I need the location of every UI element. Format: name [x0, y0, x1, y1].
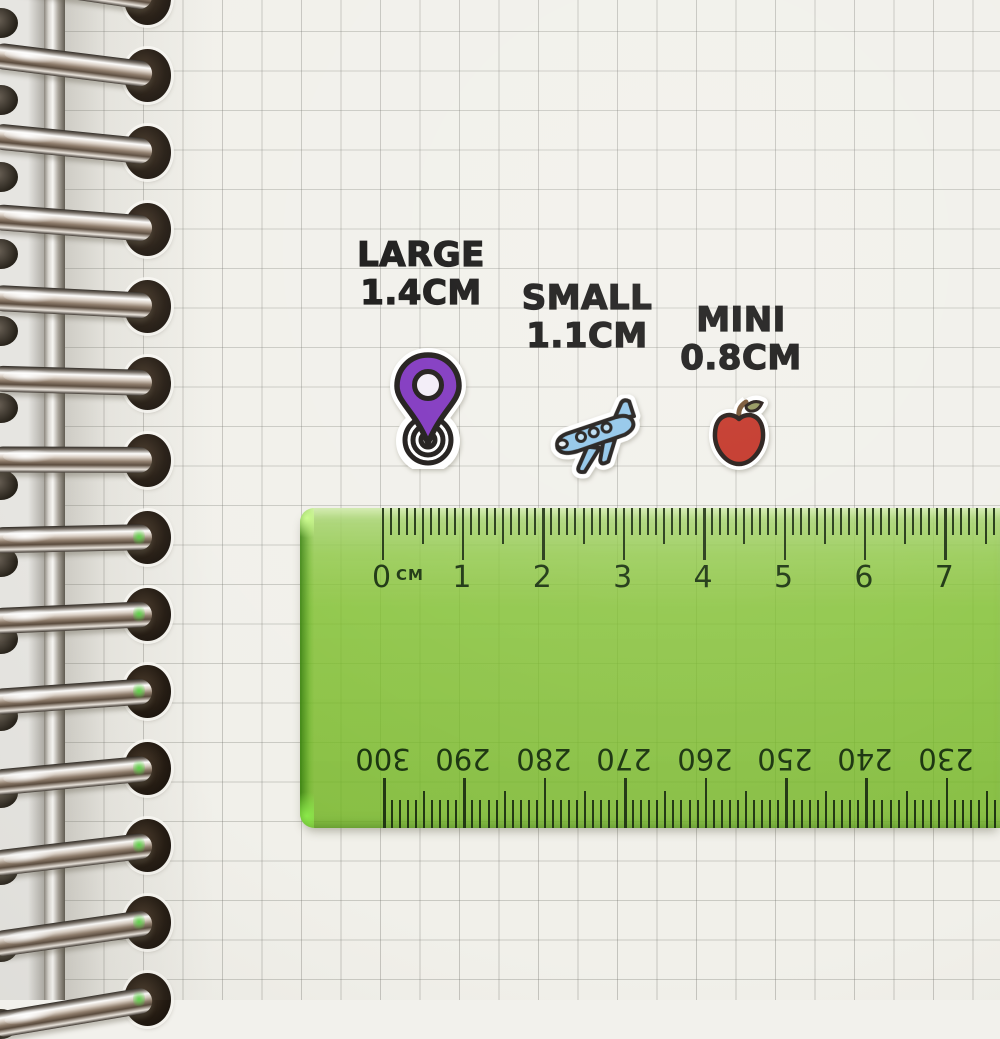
ruler-tick-bottom — [536, 800, 538, 828]
ruler-tick-bottom — [616, 800, 618, 828]
ruler-tick-top — [880, 508, 882, 535]
ruler-tick-bottom — [873, 800, 875, 828]
ruler-tick-top — [591, 508, 593, 535]
ruler-tick-bottom — [938, 800, 940, 828]
binder-ring — [0, 446, 152, 473]
ruler-tick-bottom — [415, 800, 417, 828]
label-large-title: LARGE — [357, 236, 485, 274]
ruler-tick-top — [719, 508, 721, 535]
ruler-tick-top — [647, 508, 649, 535]
ruler-tick-bottom — [785, 778, 788, 828]
ruler-tick-bottom — [504, 791, 506, 828]
ruler-tick-top — [743, 508, 745, 544]
ruler-tick-top — [494, 508, 496, 535]
ruler-unit-label: CM — [396, 566, 424, 584]
binder-ring — [0, 366, 152, 396]
ruler-tick-top — [615, 508, 617, 535]
ruler-tick-bottom — [906, 791, 908, 828]
ruler-tick-top — [639, 508, 641, 535]
ruler-tick-bottom — [809, 800, 811, 828]
ruler-bottom-number: 280 — [516, 742, 571, 776]
ruler-tick-bottom — [914, 800, 916, 828]
ruler-tick-bottom — [488, 800, 490, 828]
location-pin-sticker — [381, 345, 475, 469]
ruler-tick-bottom — [584, 791, 586, 828]
ruler-tick-top — [446, 508, 448, 535]
ruler-tick-bottom — [922, 800, 924, 828]
ruler-tick-top — [800, 508, 802, 535]
ruler-tick-bottom — [761, 800, 763, 828]
ruler-tick-top — [856, 508, 858, 535]
ruler-tick-bottom — [777, 800, 779, 828]
ruler-tick-top — [438, 508, 440, 535]
ruler-tick-bottom — [439, 800, 441, 828]
ruler-tick-bottom — [713, 800, 715, 828]
notebook-photo: LARGE 1.4CM SMALL 1.1CM MINI 0.8CM — [0, 0, 1000, 1000]
ruler-tick-bottom — [520, 800, 522, 828]
ruler-tick-top — [904, 508, 906, 544]
ruler-tick-top — [896, 508, 898, 535]
ruler-tick-bottom — [970, 800, 972, 828]
ruler-tick-bottom — [528, 800, 530, 828]
ruler-tick-bottom — [496, 800, 498, 828]
ruler-tick-bottom — [954, 800, 956, 828]
airplane-nose — [557, 440, 567, 449]
ruler-tick-top — [775, 508, 777, 535]
ruler-tick-bottom — [994, 800, 996, 828]
ruler-tick-top — [872, 508, 874, 535]
ring-green-reflection — [133, 989, 145, 1009]
ruler-tick-bottom — [544, 778, 547, 828]
binder-ring — [0, 524, 152, 553]
ruler-tick-bottom — [697, 800, 699, 828]
ruler-tick-bottom — [512, 800, 514, 828]
ruler-tick-bottom — [479, 800, 481, 828]
ruler-tick-bottom — [841, 800, 843, 828]
map-pin-hole — [415, 372, 442, 399]
ruler-top-number: 1 — [452, 560, 471, 595]
ruler-tick-top — [382, 508, 385, 560]
ruler-tick-top — [936, 508, 938, 535]
ruler-tick-top — [566, 508, 568, 535]
ruler-tick-top — [623, 508, 626, 560]
ruler-top-number: 0 — [372, 560, 391, 595]
ruler-tick-top — [808, 508, 810, 535]
ruler-tick-bottom — [705, 778, 708, 828]
ruler-tick-top — [414, 508, 416, 535]
ruler-tick-top — [985, 508, 987, 544]
ruler-tick-bottom — [833, 800, 835, 828]
ruler-tick-bottom — [383, 778, 386, 828]
apple-sticker — [705, 395, 773, 473]
ruler-tick-top — [679, 508, 681, 535]
ring-green-reflection — [133, 758, 145, 778]
ruler-tick-bottom — [592, 800, 594, 828]
ruler-bottom-number: 300 — [355, 742, 410, 776]
ruler-tick-top — [599, 508, 601, 535]
ruler-tick-bottom — [656, 800, 658, 828]
ruler-tick-top — [583, 508, 585, 544]
ruler-tick-bottom — [865, 778, 868, 828]
label-small-title: SMALL — [522, 279, 652, 317]
ruler-tick-bottom — [568, 800, 570, 828]
ruler-tick-top — [912, 508, 914, 535]
ring-green-reflection — [133, 912, 145, 932]
ring-green-reflection — [133, 835, 145, 855]
ruler-tick-bottom — [962, 800, 964, 828]
ruler-tick-top — [558, 508, 560, 535]
ruler-tick-top — [534, 508, 536, 535]
ruler-bottom-number: 270 — [597, 742, 652, 776]
ruler-top-number: 3 — [613, 560, 632, 595]
ruler-tick-bottom — [447, 800, 449, 828]
ruler-tick-top — [687, 508, 689, 535]
ruler-tick-top — [711, 508, 713, 535]
label-mini: MINI 0.8CM — [680, 301, 802, 377]
ruler-tick-top — [832, 508, 834, 535]
ruler-tick-bottom — [423, 791, 425, 828]
ruler-tick-top — [751, 508, 753, 535]
ruler-tick-top — [398, 508, 400, 535]
ruler-tick-top — [792, 508, 794, 535]
ruler-tick-bottom — [664, 791, 666, 828]
ruler-tick-bottom — [560, 800, 562, 828]
ruler-tick-top — [631, 508, 633, 535]
ruler-tick-top — [864, 508, 867, 560]
ruler-tick-top — [406, 508, 408, 535]
airplane-sticker — [543, 393, 655, 481]
ruler-tick-top — [695, 508, 697, 535]
ruler-tick-bottom — [455, 800, 457, 828]
ruler-tick-bottom — [801, 800, 803, 828]
ruler-tick-top — [607, 508, 609, 535]
ruler-tick-bottom — [471, 800, 473, 828]
ruler-tick-top — [655, 508, 657, 535]
ruler-tick-top — [574, 508, 576, 535]
ruler-tick-top — [759, 508, 761, 535]
ruler-tick-top — [960, 508, 962, 535]
ruler-bottom-number: 290 — [436, 742, 491, 776]
ruler-top-number: 5 — [774, 560, 793, 595]
ruler-tick-bottom — [552, 800, 554, 828]
ruler-tick-top — [816, 508, 818, 535]
ruler-tick-bottom — [721, 800, 723, 828]
ruler-tick-bottom — [608, 800, 610, 828]
ruler-tick-top — [478, 508, 480, 535]
ruler-tick-top — [784, 508, 787, 560]
ruler-bottom-number: 260 — [677, 742, 732, 776]
ruler-tick-top — [840, 508, 842, 535]
ruler-tick-bottom — [576, 800, 578, 828]
ruler-tick-top — [542, 508, 545, 560]
ruler-tick-top — [952, 508, 954, 535]
ruler-tick-top — [550, 508, 552, 535]
ruler-tick-bottom — [769, 800, 771, 828]
ruler-tick-top — [727, 508, 729, 535]
ruler-tick-bottom — [745, 791, 747, 828]
ruler-tick-bottom — [753, 800, 755, 828]
ruler-tick-bottom — [825, 791, 827, 828]
ruler-tick-bottom — [946, 778, 949, 828]
ruler-left-edge — [300, 508, 314, 828]
ruler-tick-bottom — [680, 800, 682, 828]
ruler-tick-bottom — [817, 800, 819, 828]
ruler-tick-bottom — [431, 800, 433, 828]
ruler-tick-top — [510, 508, 512, 535]
ruler-tick-bottom — [600, 800, 602, 828]
ruler-tick-top — [888, 508, 890, 535]
label-mini-size: 0.8CM — [680, 339, 802, 377]
ruler-tick-bottom — [729, 800, 731, 828]
ruler-top-number: 7 — [935, 560, 954, 595]
ruler: 01234567300290280270260250240230 CM — [300, 508, 1000, 828]
ruler-top-number: 6 — [854, 560, 873, 595]
ruler-tick-top — [486, 508, 488, 535]
ruler-tick-top — [671, 508, 673, 535]
ring-green-reflection — [133, 681, 145, 701]
label-mini-title: MINI — [680, 301, 802, 339]
ruler-tick-bottom — [407, 800, 409, 828]
ruler-tick-top — [944, 508, 947, 560]
ruler-tick-top — [430, 508, 432, 535]
ruler-tick-bottom — [881, 800, 883, 828]
ruler-tick-top — [976, 508, 978, 535]
ruler-tick-top — [390, 508, 392, 535]
ruler-tick-bottom — [849, 800, 851, 828]
apple-icon — [715, 415, 763, 464]
ruler-tick-top — [920, 508, 922, 535]
ruler-tick-bottom — [672, 800, 674, 828]
ruler-bottom-number: 240 — [838, 742, 893, 776]
ring-green-reflection — [133, 604, 145, 624]
ruler-tick-top — [993, 508, 995, 535]
ruler-tick-top — [703, 508, 706, 560]
ruler-tick-top — [422, 508, 424, 544]
ruler-tick-bottom — [793, 800, 795, 828]
ruler-tick-top — [462, 508, 465, 560]
ruler-bottom-number: 230 — [918, 742, 973, 776]
ruler-tick-bottom — [463, 778, 466, 828]
ruler-tick-top — [502, 508, 504, 544]
ruler-tick-bottom — [689, 800, 691, 828]
ruler-tick-bottom — [857, 800, 859, 828]
ruler-top-number: 4 — [694, 560, 713, 595]
ruler-tick-bottom — [624, 778, 627, 828]
ruler-top-number: 2 — [533, 560, 552, 595]
ruler-tick-top — [663, 508, 665, 544]
ruler-tick-top — [470, 508, 472, 535]
ruler-tick-bottom — [648, 800, 650, 828]
ruler-tick-top — [968, 508, 970, 535]
ruler-tick-top — [848, 508, 850, 535]
ruler-tick-bottom — [399, 800, 401, 828]
ruler-tick-top — [454, 508, 456, 535]
ruler-tick-top — [526, 508, 528, 535]
ruler-tick-bottom — [930, 800, 932, 828]
ruler-bottom-number: 250 — [757, 742, 812, 776]
ruler-tick-bottom — [632, 800, 634, 828]
label-small-size: 1.1CM — [522, 317, 652, 355]
ring-green-reflection — [133, 527, 145, 547]
label-large: LARGE 1.4CM — [357, 236, 485, 312]
ruler-tick-top — [767, 508, 769, 535]
ruler-tick-top — [928, 508, 930, 535]
ruler-tick-bottom — [986, 791, 988, 828]
ruler-tick-top — [735, 508, 737, 535]
ruler-tick-bottom — [898, 800, 900, 828]
ruler-tick-bottom — [978, 800, 980, 828]
ruler-tick-top — [824, 508, 826, 544]
label-small: SMALL 1.1CM — [522, 279, 652, 355]
ruler-tick-top — [518, 508, 520, 535]
ruler-tick-bottom — [391, 800, 393, 828]
ruler-tick-bottom — [890, 800, 892, 828]
label-large-size: 1.4CM — [357, 274, 485, 312]
ruler-tick-bottom — [737, 800, 739, 828]
ruler-tick-bottom — [640, 800, 642, 828]
